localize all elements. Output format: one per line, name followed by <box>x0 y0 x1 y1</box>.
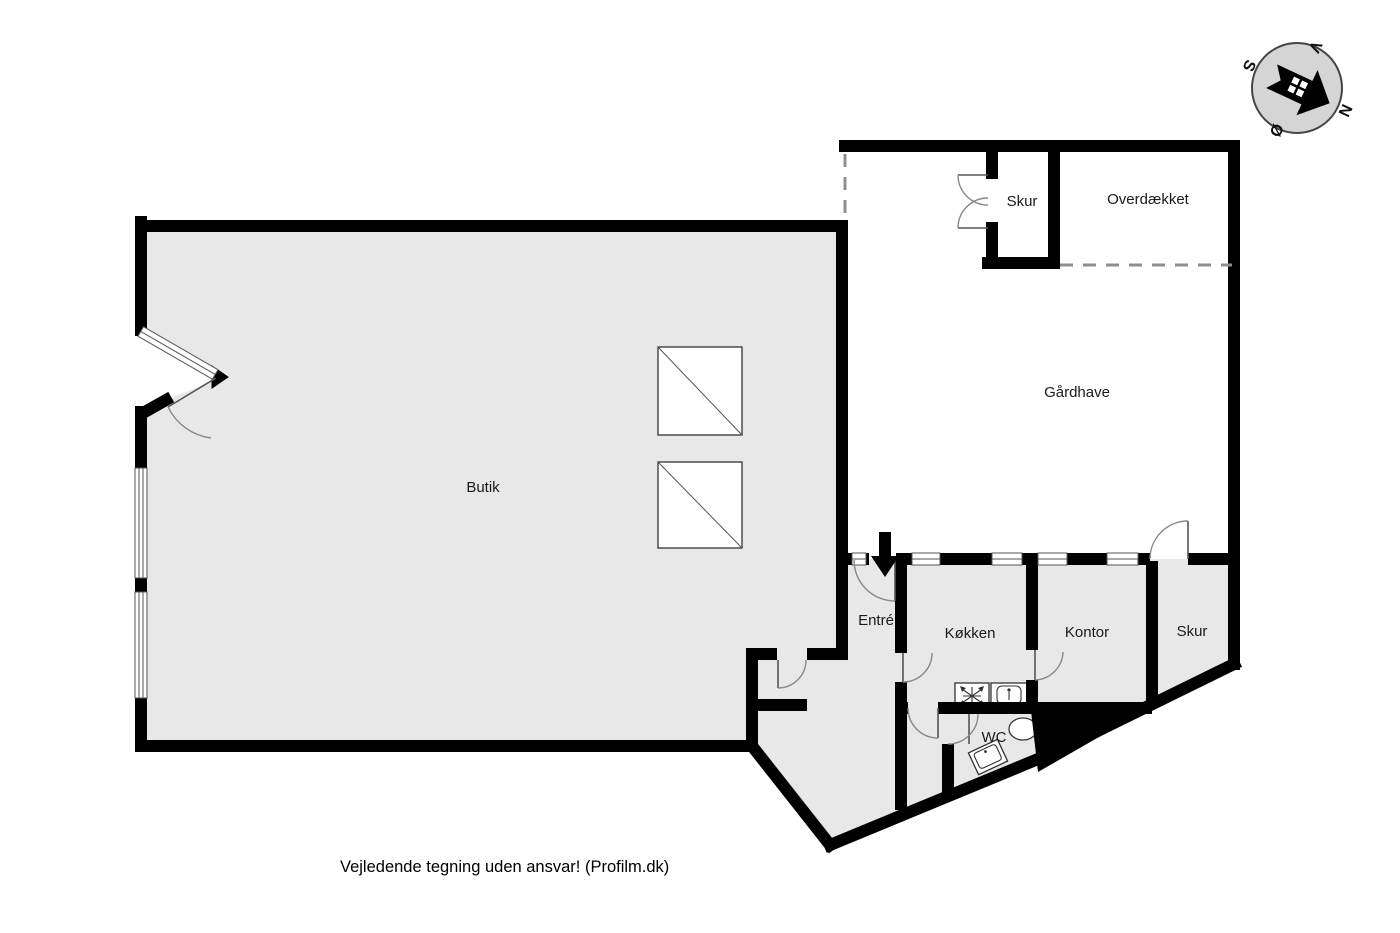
room-label-butik: Butik <box>466 479 500 496</box>
room-label-koekken: Køkken <box>945 625 996 642</box>
room-label-gaardhave: Gårdhave <box>1044 384 1110 401</box>
skylight-icon <box>658 347 742 435</box>
window-icon <box>135 468 147 578</box>
double-door-icon <box>958 175 988 228</box>
compass-label-south: S <box>1238 57 1258 74</box>
compass-rose: N S Ø V <box>1218 16 1373 162</box>
room-label-wc: WC <box>982 729 1007 746</box>
room-label-overdaekket: Overdækket <box>1107 191 1190 208</box>
window-icon <box>1038 553 1067 565</box>
skylight-icon <box>658 462 742 548</box>
window-icon <box>912 553 940 565</box>
disclaimer-text: Vejledende tegning uden ansvar! (Profilm… <box>340 858 669 876</box>
dashed-boundaries <box>845 154 1232 265</box>
door-icon <box>1150 521 1188 559</box>
window-icon <box>992 553 1022 565</box>
room-label-entre: Entré <box>858 612 894 629</box>
floor-plan-drawing: Butik Gårdhave Skur Overdækket Entré Køk… <box>0 0 1400 933</box>
floor-plan-page: Butik Gårdhave Skur Overdækket Entré Køk… <box>0 0 1400 933</box>
window-icon <box>135 592 147 698</box>
window-icon <box>1107 553 1138 565</box>
room-label-kontor: Kontor <box>1065 624 1109 641</box>
room-label-skur-top: Skur <box>1007 193 1038 210</box>
room-label-skur-right: Skur <box>1177 623 1208 640</box>
